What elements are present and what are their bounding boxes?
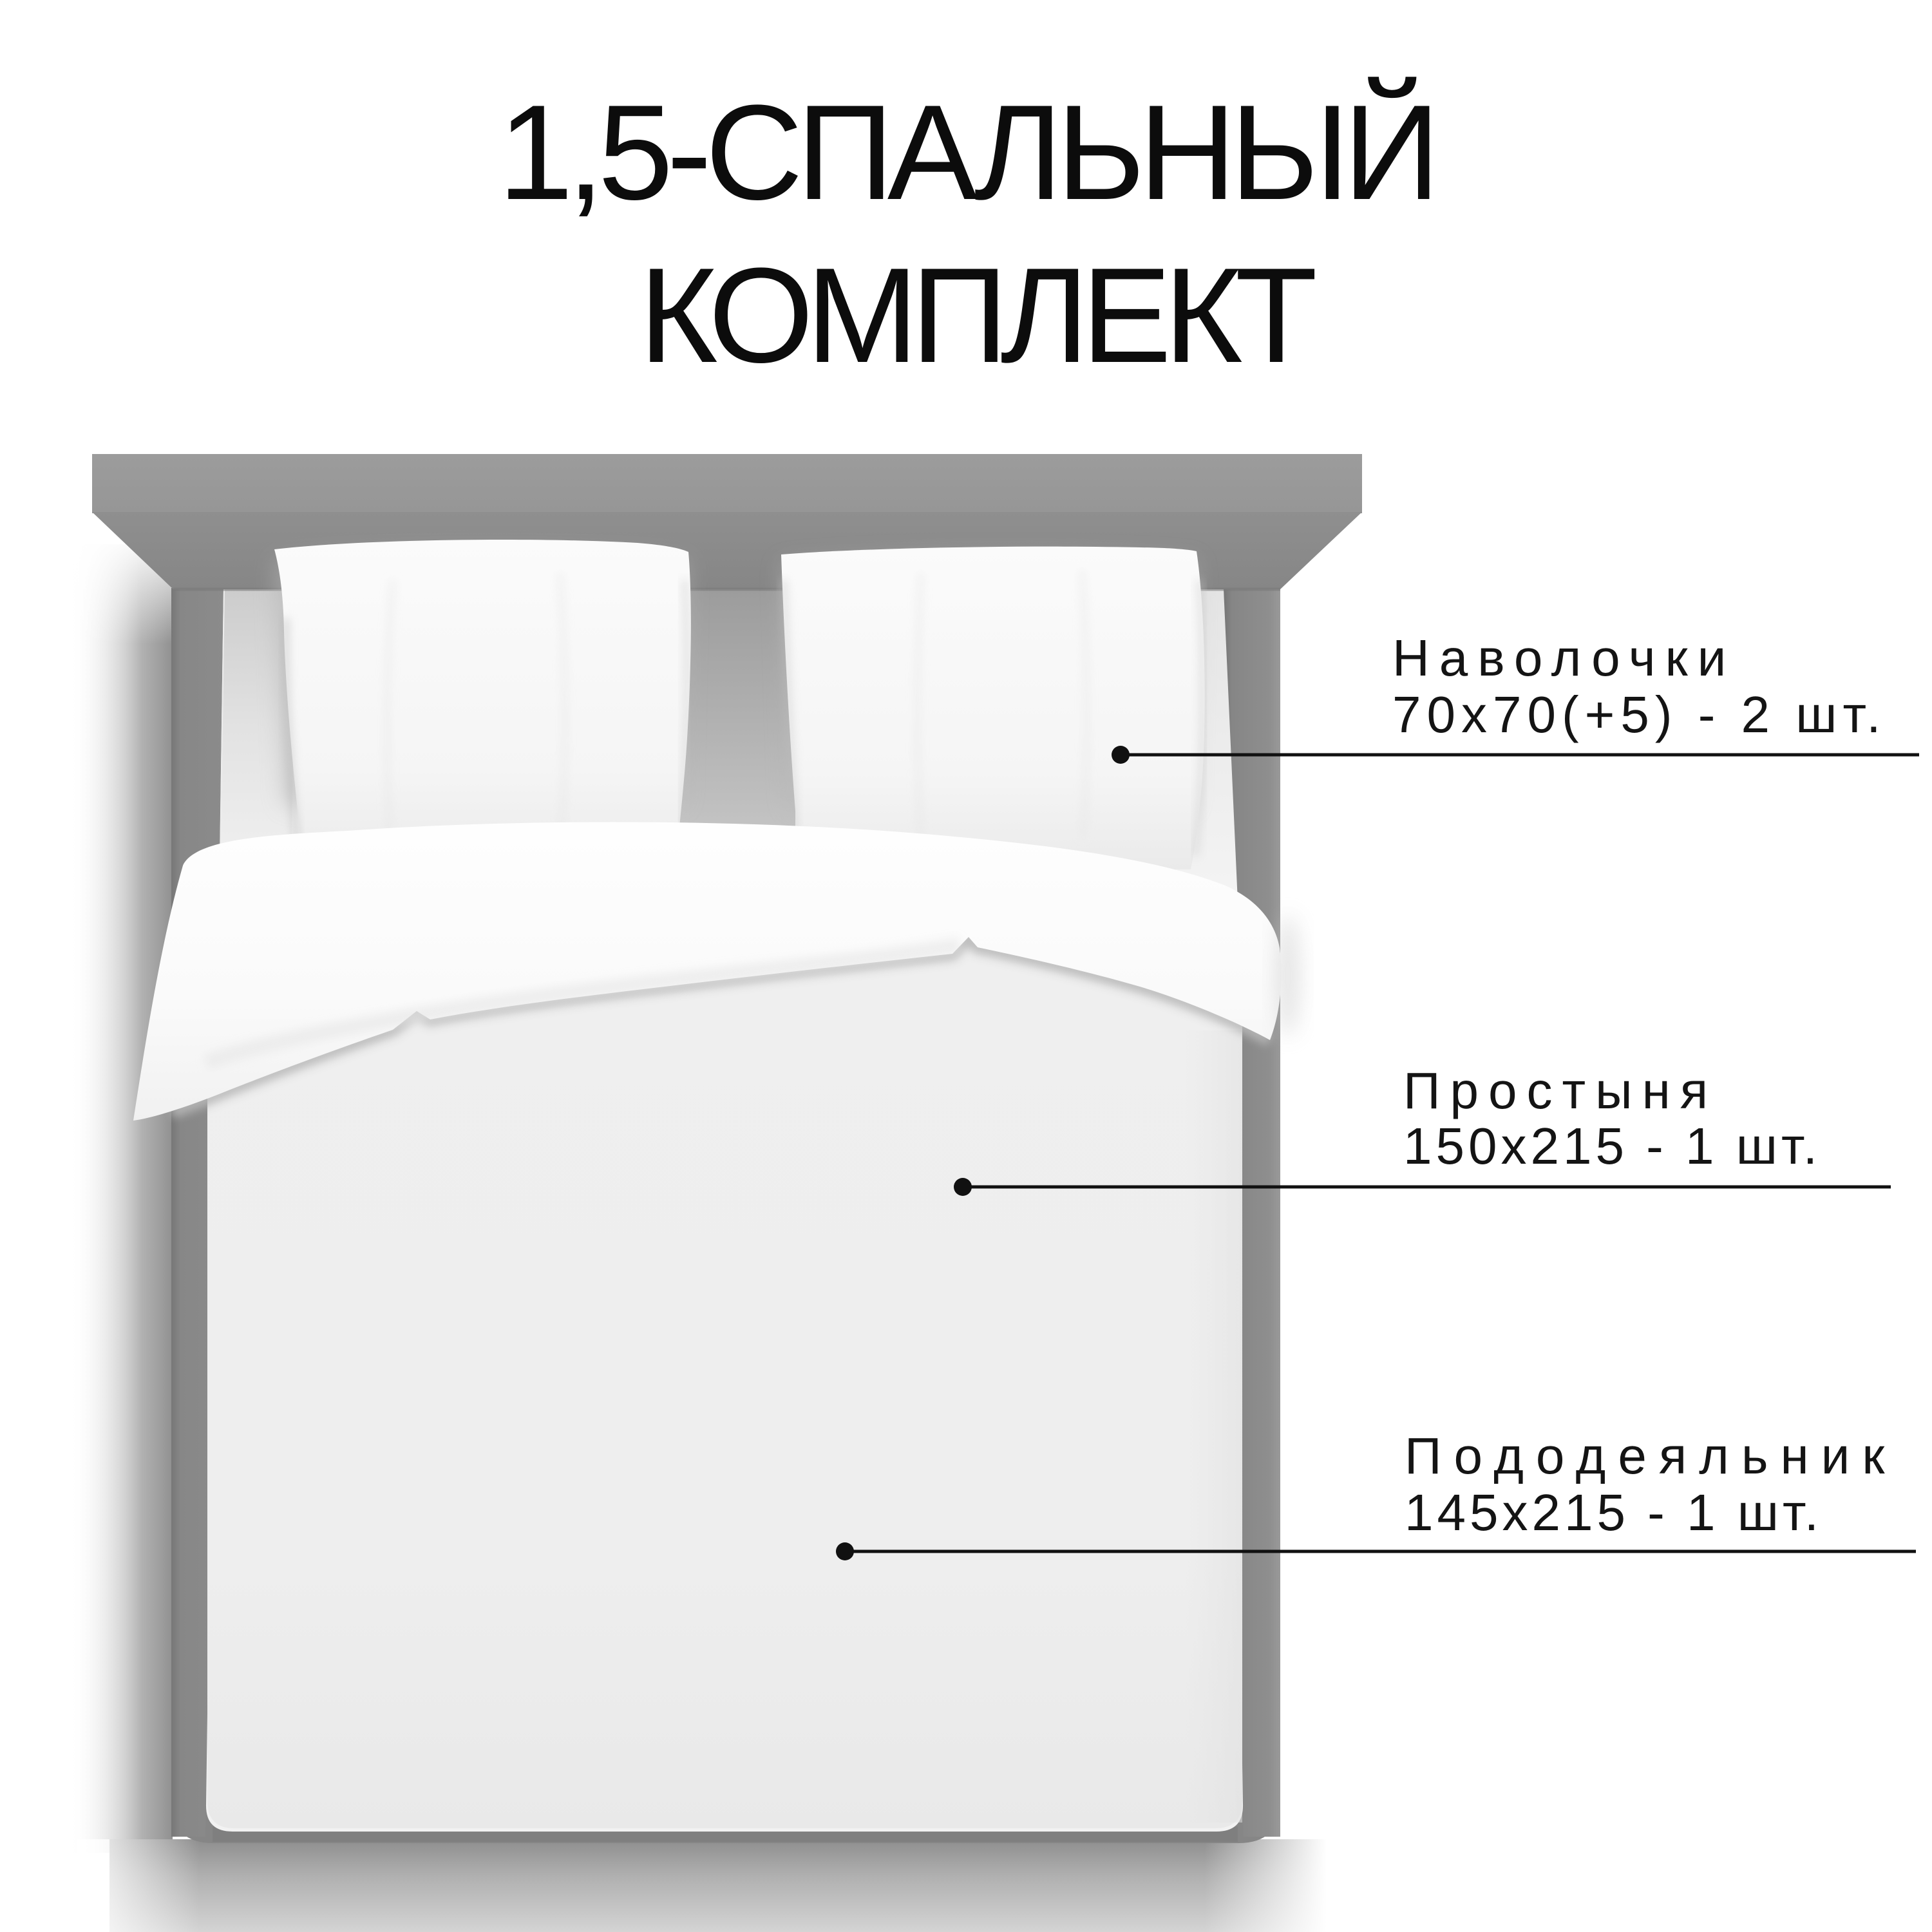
svg-text:145х215 - 1 шт.: 145х215 - 1 шт. xyxy=(1405,1484,1823,1541)
svg-text:150х215 - 1 шт.: 150х215 - 1 шт. xyxy=(1403,1117,1821,1175)
svg-text:Пододеяльник: Пододеяльник xyxy=(1405,1427,1897,1484)
svg-text:70х70(+5) - 2 шт.: 70х70(+5) - 2 шт. xyxy=(1392,686,1886,743)
svg-text:КОМПЛЕКТ: КОМПЛЕКТ xyxy=(639,240,1314,391)
svg-text:1,5-СПАЛЬНЫЙ: 1,5-СПАЛЬНЫЙ xyxy=(498,77,1434,228)
svg-text:Наволочки: Наволочки xyxy=(1392,629,1736,687)
svg-text:Простыня: Простыня xyxy=(1403,1062,1718,1119)
